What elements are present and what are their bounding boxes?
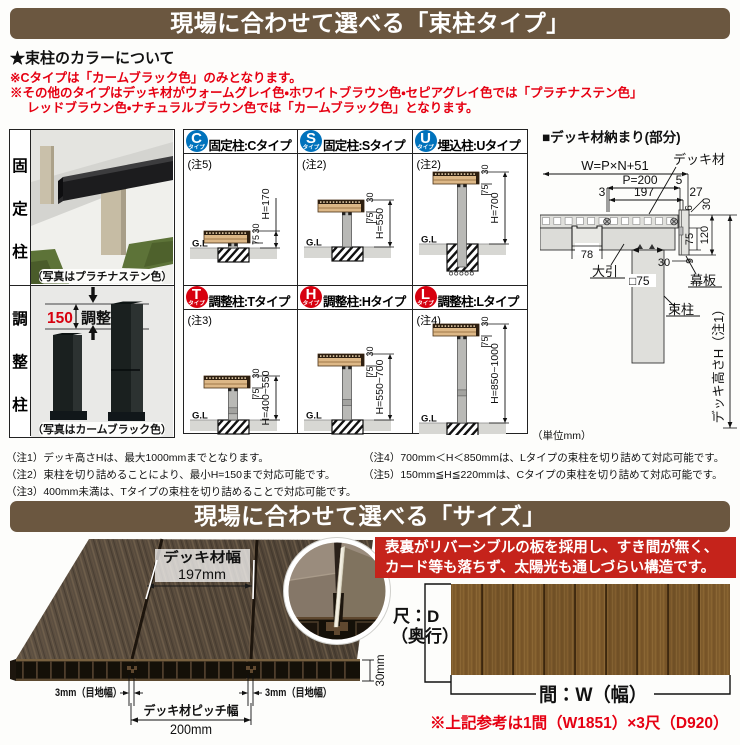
svg-text:間：W（幅）: 間：W（幅） — [539, 683, 647, 706]
svg-text:G.L: G.L — [306, 411, 322, 422]
svg-text:デッキ材幅: デッキ材幅 — [163, 549, 242, 565]
svg-text:調整: 調整 — [81, 309, 112, 327]
svg-text:束柱: 束柱 — [668, 302, 694, 317]
svg-text:3: 3 — [599, 185, 606, 199]
svg-text:大引: 大引 — [592, 264, 618, 279]
svg-text:197mm: 197mm — [178, 566, 226, 582]
svg-text:3mm（目地幅）: 3mm（目地幅） — [55, 685, 122, 699]
svg-text:78: 78 — [581, 249, 593, 261]
svg-text:30: 30 — [365, 346, 375, 356]
svg-text:H=700: H=700 — [489, 192, 501, 223]
svg-text:27: 27 — [689, 185, 703, 199]
svg-text:デッキ材: デッキ材 — [673, 152, 725, 167]
svg-text:W=P×N+51: W=P×N+51 — [581, 158, 649, 173]
svg-text:30: 30 — [480, 316, 490, 326]
svg-text:30: 30 — [701, 198, 713, 210]
svg-text:G.L: G.L — [421, 235, 437, 246]
svg-text:尺：D: 尺：D — [393, 607, 439, 626]
svg-text:■デッキ材納まり(部分): ■デッキ材納まり(部分) — [542, 129, 681, 145]
svg-text:H=850~1000: H=850~1000 — [489, 343, 501, 404]
svg-text:150: 150 — [47, 310, 73, 327]
svg-text:30mm: 30mm — [375, 655, 387, 687]
svg-text:デッキ材ピッチ幅: デッキ材ピッチ幅 — [144, 703, 239, 718]
svg-text:G.L: G.L — [421, 414, 437, 425]
svg-text:デッキ高さH（注1）: デッキ高さH（注1） — [711, 303, 726, 424]
svg-text:G.L: G.L — [192, 411, 208, 422]
svg-text:H=550: H=550 — [374, 208, 386, 239]
svg-text:□75: □75 — [629, 274, 650, 288]
svg-text:幕板: 幕板 — [690, 273, 716, 288]
svg-text:30: 30 — [365, 192, 375, 202]
svg-text:G.L: G.L — [192, 239, 208, 250]
svg-text:（奥行）: （奥行） — [391, 626, 459, 646]
svg-text:3mm（目地幅）: 3mm（目地幅） — [265, 685, 332, 699]
svg-text:30: 30 — [480, 164, 490, 174]
svg-text:G.L: G.L — [306, 238, 322, 249]
svg-text:75: 75 — [684, 233, 696, 245]
svg-text:H=400~550: H=400~550 — [260, 370, 272, 425]
svg-text:9: 9 — [685, 258, 696, 264]
svg-text:75: 75 — [251, 235, 261, 245]
svg-text:120: 120 — [699, 226, 711, 244]
svg-text:（写真はカームブラック色）: （写真はカームブラック色） — [32, 422, 171, 436]
svg-text:H=170: H=170 — [260, 188, 272, 219]
svg-text:197: 197 — [634, 185, 654, 199]
svg-text:5: 5 — [676, 173, 683, 187]
svg-text:30: 30 — [658, 257, 670, 269]
svg-text:200mm: 200mm — [170, 722, 212, 737]
svg-text:H=550~700: H=550~700 — [374, 359, 386, 414]
svg-text:（写真はプラチナステン色）: （写真はプラチナステン色） — [32, 269, 172, 283]
svg-text:30: 30 — [251, 223, 261, 233]
